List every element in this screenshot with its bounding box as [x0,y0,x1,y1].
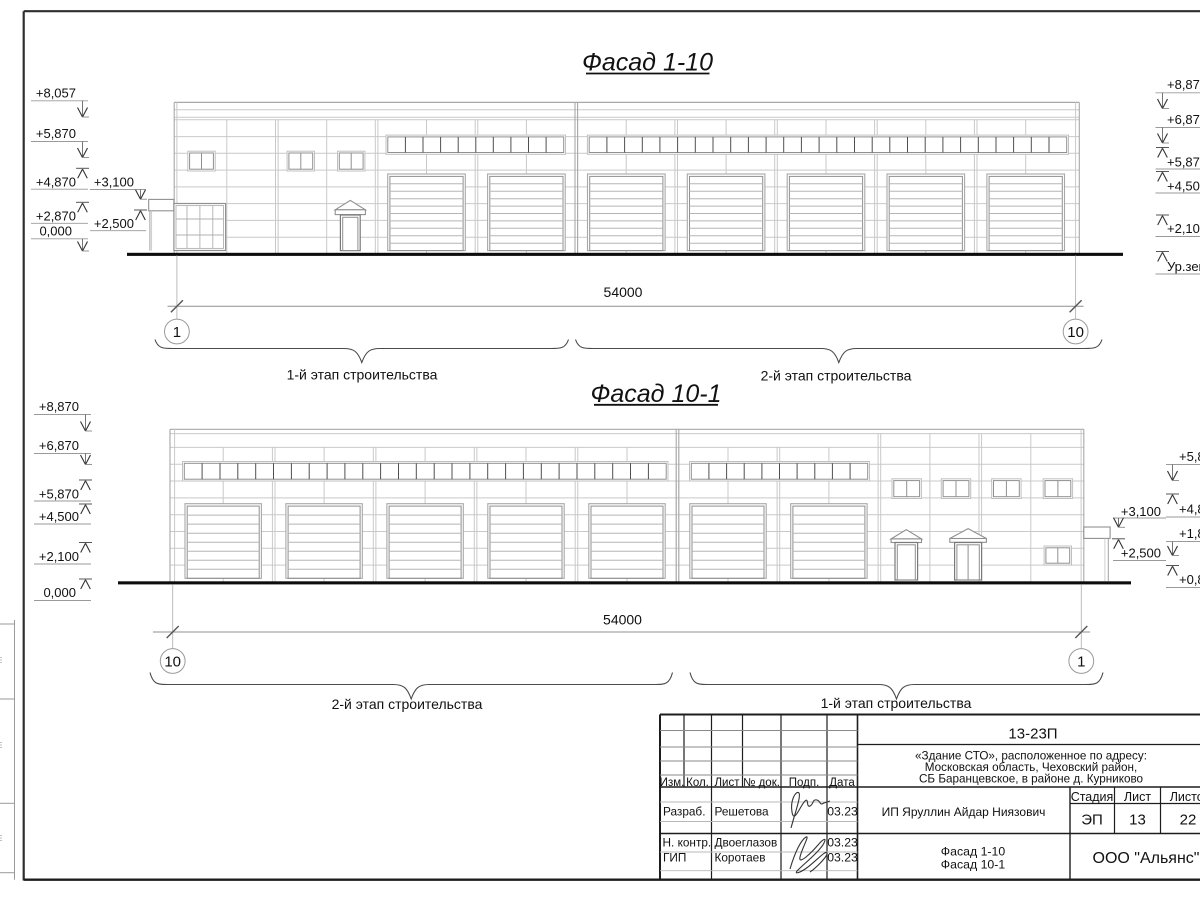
svg-text:+1,800: +1,800 [1179,526,1200,541]
svg-text:13: 13 [1129,812,1146,829]
svg-text:22: 22 [1180,812,1197,829]
svg-text:+4,870: +4,870 [36,174,76,189]
svg-text:+8,057: +8,057 [36,86,76,101]
svg-text:03.23: 03.23 [827,836,858,850]
svg-text:+8,870: +8,870 [39,399,79,414]
svg-text:2-й этап строительства: 2-й этап строительства [332,696,483,712]
svg-text:ООО "Альянс": ООО "Альянс" [1093,850,1200,867]
svg-text:ЭП: ЭП [1081,812,1103,829]
svg-text:+6,870: +6,870 [39,438,79,453]
svg-text:+2,100: +2,100 [1167,221,1200,236]
svg-text:+3,100: +3,100 [94,174,134,189]
svg-text:Кол.: Кол. [686,777,709,789]
svg-text:Изм.: Изм. [660,777,685,789]
svg-text:+8,870: +8,870 [1167,77,1200,92]
svg-text:Фасад 10-1: Фасад 10-1 [941,858,1006,872]
svg-text:Лист: Лист [715,777,741,789]
svg-text:Листов: Листов [1170,790,1200,804]
svg-text:1-й этап строительства: 1-й этап строительства [821,695,972,711]
svg-text:Ур.земли: Ур.земли [1167,259,1200,274]
svg-text:№ док.: № док. [743,777,780,789]
svg-text:Н. контр.: Н. контр. [663,836,712,850]
svg-text:13-23П: 13-23П [1008,726,1057,743]
svg-text:+2,870: +2,870 [36,208,76,223]
svg-text:Коротаев: Коротаев [715,851,766,865]
svg-text:54000: 54000 [604,284,643,300]
svg-text:...: ... [0,656,4,664]
svg-text:Фасад 1-10: Фасад 1-10 [582,49,713,77]
svg-text:Фасад 10-1: Фасад 10-1 [591,380,722,408]
svg-text:Подп.: Подп. [789,777,820,789]
svg-text:0,000: 0,000 [39,223,72,238]
svg-text:1: 1 [173,324,181,341]
svg-text:ГИП: ГИП [663,851,686,865]
svg-text:Дата: Дата [829,777,855,789]
svg-text:+4,500: +4,500 [1167,179,1200,194]
svg-text:03.23: 03.23 [827,805,858,819]
svg-text:...: ... [0,741,4,749]
svg-text:Разраб.: Разраб. [663,805,705,819]
svg-text:+3,100: +3,100 [1121,504,1161,519]
svg-text:54000: 54000 [603,612,642,628]
svg-text:Лист: Лист [1124,790,1151,804]
svg-text:Решетова: Решетова [715,805,770,819]
svg-text:10: 10 [164,653,181,670]
svg-text:ИП Яруллин Айдар Ниязович: ИП Яруллин Айдар Ниязович [882,805,1046,819]
svg-text:+5,870: +5,870 [1179,449,1200,464]
svg-text:Фасад 1-10: Фасад 1-10 [941,845,1006,859]
svg-text:+4,500: +4,500 [39,509,79,524]
svg-text:+2,500: +2,500 [94,216,134,231]
svg-text:2-й этап строительства: 2-й этап строительства [761,368,912,384]
svg-text:03.23: 03.23 [827,851,858,865]
svg-text:+6,870: +6,870 [1167,112,1200,127]
svg-text:+4,870: +4,870 [1179,502,1200,517]
svg-text:0,000: 0,000 [43,585,76,600]
svg-text:+5,870: +5,870 [36,126,76,141]
svg-text:+0,800: +0,800 [1179,572,1200,587]
svg-text:Стадия: Стадия [1071,790,1114,804]
svg-text:1-й этап строительства: 1-й этап строительства [287,367,438,383]
svg-text:1: 1 [1077,653,1085,670]
svg-text:+5,870: +5,870 [1167,155,1200,170]
svg-text:10: 10 [1067,324,1084,341]
svg-text:+2,500: +2,500 [1121,546,1161,561]
svg-text:+5,870: +5,870 [39,487,79,502]
svg-text:...: ... [0,834,4,842]
svg-text:+2,100: +2,100 [39,549,79,564]
svg-text:Двоеглазов: Двоеглазов [715,836,778,850]
svg-text:СБ Баранцевское, в районе д. К: СБ Баранцевское, в районе д. Курниково [919,773,1144,786]
